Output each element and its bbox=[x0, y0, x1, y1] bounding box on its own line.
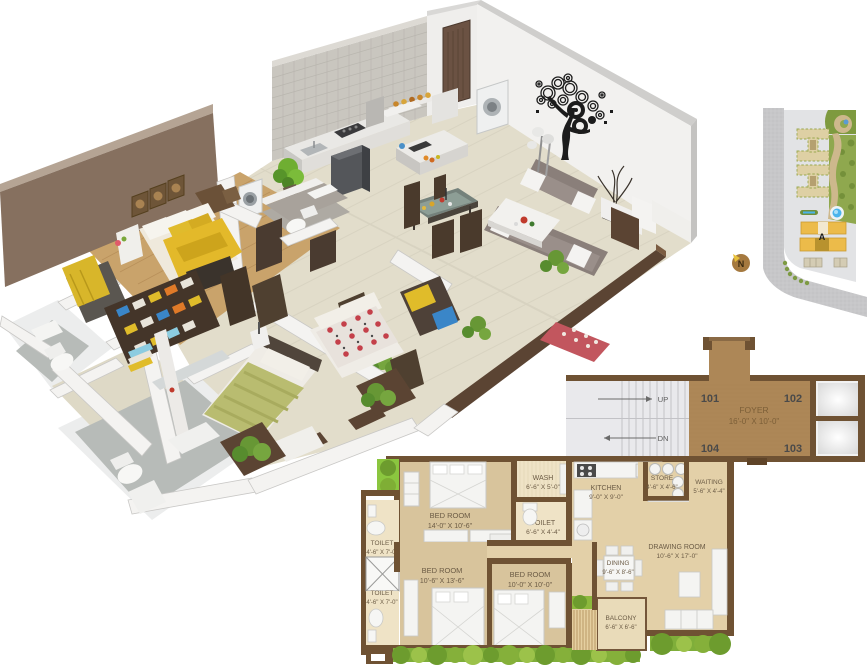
svg-text:WAITING: WAITING bbox=[695, 479, 723, 486]
svg-text:4'-6" X 7'-0": 4'-6" X 7'-0" bbox=[366, 550, 397, 556]
svg-text:9'-0" X 9'-0": 9'-0" X 9'-0" bbox=[589, 494, 624, 501]
svg-text:14'-0" X 10'-6": 14'-0" X 10'-6" bbox=[428, 523, 473, 530]
svg-text:10'-0" X 10'-0": 10'-0" X 10'-0" bbox=[508, 582, 553, 589]
svg-text:5'-6" X 4'-4": 5'-6" X 4'-4" bbox=[693, 489, 724, 495]
svg-text:A: A bbox=[819, 232, 826, 242]
svg-text:DN: DN bbox=[658, 434, 669, 443]
svg-text:WASH: WASH bbox=[533, 475, 554, 482]
svg-text:FOYER: FOYER bbox=[739, 405, 768, 415]
svg-text:DRAWING ROOM: DRAWING ROOM bbox=[648, 544, 705, 551]
svg-text:104: 104 bbox=[701, 443, 720, 455]
svg-text:6'-6" X 6'-6": 6'-6" X 6'-6" bbox=[605, 625, 636, 631]
svg-text:102: 102 bbox=[784, 393, 802, 405]
svg-text:16'-0" X 10'-0": 16'-0" X 10'-0" bbox=[729, 417, 780, 426]
svg-text:KITCHEN: KITCHEN bbox=[591, 485, 622, 492]
svg-text:BED ROOM: BED ROOM bbox=[430, 511, 471, 520]
svg-text:4'-6" X 7'-0": 4'-6" X 7'-0" bbox=[366, 600, 397, 606]
svg-text:BED ROOM: BED ROOM bbox=[510, 570, 551, 579]
svg-text:10'-6" X 17'-0": 10'-6" X 17'-0" bbox=[656, 553, 698, 560]
svg-text:STORE: STORE bbox=[651, 475, 674, 482]
svg-text:101: 101 bbox=[701, 393, 719, 405]
svg-text:10'-6" X 13'-6": 10'-6" X 13'-6" bbox=[420, 578, 465, 585]
svg-text:BED ROOM: BED ROOM bbox=[422, 566, 463, 575]
svg-text:BALCONY: BALCONY bbox=[605, 615, 637, 622]
svg-text:6'-6" X 5'-0": 6'-6" X 5'-0" bbox=[526, 484, 561, 491]
svg-text:4'-6" X 4'-6": 4'-6" X 4'-6" bbox=[646, 485, 677, 491]
svg-text:9'-6" X 8'-6": 9'-6" X 8'-6" bbox=[602, 570, 633, 576]
svg-text:N: N bbox=[738, 259, 745, 269]
svg-text:UP: UP bbox=[658, 395, 668, 404]
svg-text:103: 103 bbox=[784, 443, 802, 455]
svg-text:TOILET: TOILET bbox=[371, 540, 394, 547]
svg-text:TOILET: TOILET bbox=[371, 590, 394, 597]
svg-text:DINING: DINING bbox=[607, 560, 630, 567]
svg-text:6'-6" X 4'-4": 6'-6" X 4'-4" bbox=[526, 529, 561, 536]
